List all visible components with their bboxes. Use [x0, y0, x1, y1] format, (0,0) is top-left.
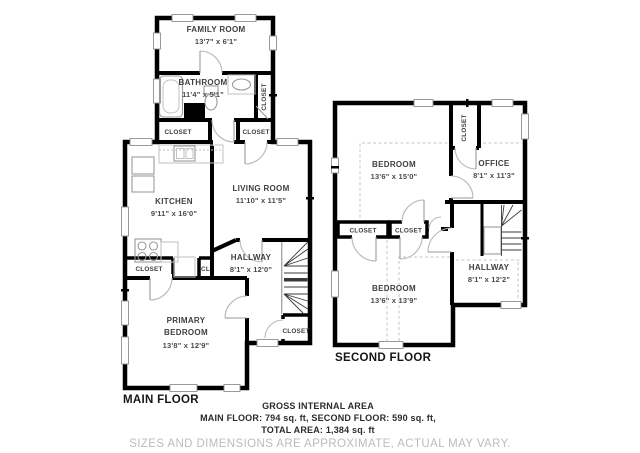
room-label-bedroom-1: BEDROOM [372, 160, 416, 169]
floor-plan-canvas: FAMILY ROOM 13'7" x 6'1" BATHROOM 11'4" … [0, 0, 640, 453]
room-dims-office: 8'1" x 11'3" [473, 171, 515, 180]
room-dims-hallway: 8'1" x 12'0" [230, 265, 273, 274]
room-label-family-room: FAMILY ROOM [187, 25, 246, 34]
room-label-primary-bedroom-line1: PRIMARY [167, 316, 206, 325]
room-dims-primary-bedroom: 13'8" x 12'9" [163, 341, 210, 350]
room-dims-hallway-2: 8'1" x 12'2" [468, 275, 511, 284]
closet-label: CLOSET [164, 129, 191, 136]
footer-floor-areas: MAIN FLOOR: 794 sq. ft, SECOND FLOOR: 59… [200, 413, 436, 423]
closet-label: CLOSET [261, 83, 268, 110]
closet-label: CLOSET [282, 328, 309, 335]
room-label-bathroom: BATHROOM [179, 78, 228, 87]
bathroom-sink [228, 75, 255, 94]
closet-label: CLOSET [395, 228, 422, 235]
room-label-primary-bedroom-line2: BEDROOM [164, 328, 208, 337]
second-floor-stairs [484, 205, 522, 256]
room-label-bedroom-2: BEDROOM [372, 284, 416, 293]
closet-label: CLOSET [349, 228, 376, 235]
footer-title: GROSS INTERNAL AREA [262, 401, 374, 411]
room-label-hallway: HALLWAY [231, 253, 272, 262]
footer-total-area: TOTAL AREA: 1,384 sq. ft [261, 425, 375, 435]
closet-label-cl: CL [201, 266, 210, 273]
room-label-office: OFFICE [478, 159, 509, 168]
room-label-living-room: LIVING ROOM [232, 184, 289, 193]
room-dims-kitchen: 9'11" x 16'0" [151, 209, 197, 218]
closet-label: CLOSET [242, 129, 269, 136]
dishwasher [174, 257, 195, 277]
room-dims-bedroom-2: 13'6" x 13'9" [371, 296, 418, 305]
closet-label: CLOSET [461, 114, 468, 141]
footer-disclaimer: SIZES AND DIMENSIONS ARE APPROXIMATE, AC… [129, 438, 511, 450]
main-floor-plan: FAMILY ROOM 13'7" x 6'1" BATHROOM 11'4" … [121, 15, 314, 407]
main-floor-stairs [282, 242, 308, 314]
room-dims-bathroom: 11'4" x 5'1" [182, 90, 224, 99]
closet-label: CLOSET [135, 266, 162, 273]
room-dims-family-room: 13'7" x 6'1" [195, 37, 238, 46]
room-dims-living-room: 11'10" x 11'5" [236, 196, 286, 205]
floor-label-main: MAIN FLOOR [123, 394, 199, 406]
footer: GROSS INTERNAL AREA MAIN FLOOR: 794 sq. … [129, 401, 511, 450]
floor-label-second: SECOND FLOOR [335, 352, 432, 364]
refrigerator [132, 157, 154, 192]
floor-plan-drawing: FAMILY ROOM 13'7" x 6'1" BATHROOM 11'4" … [0, 0, 640, 453]
wall-ticks [331, 99, 529, 240]
second-floor-plan: BEDROOM 13'6" x 15'0" CLOSET OFFICE 8'1"… [331, 99, 529, 364]
room-label-kitchen: KITCHEN [155, 197, 193, 206]
chimney [184, 103, 205, 120]
room-dims-bedroom-1: 13'6" x 15'0" [371, 172, 418, 181]
room-label-hallway-2: HALLWAY [469, 263, 510, 272]
